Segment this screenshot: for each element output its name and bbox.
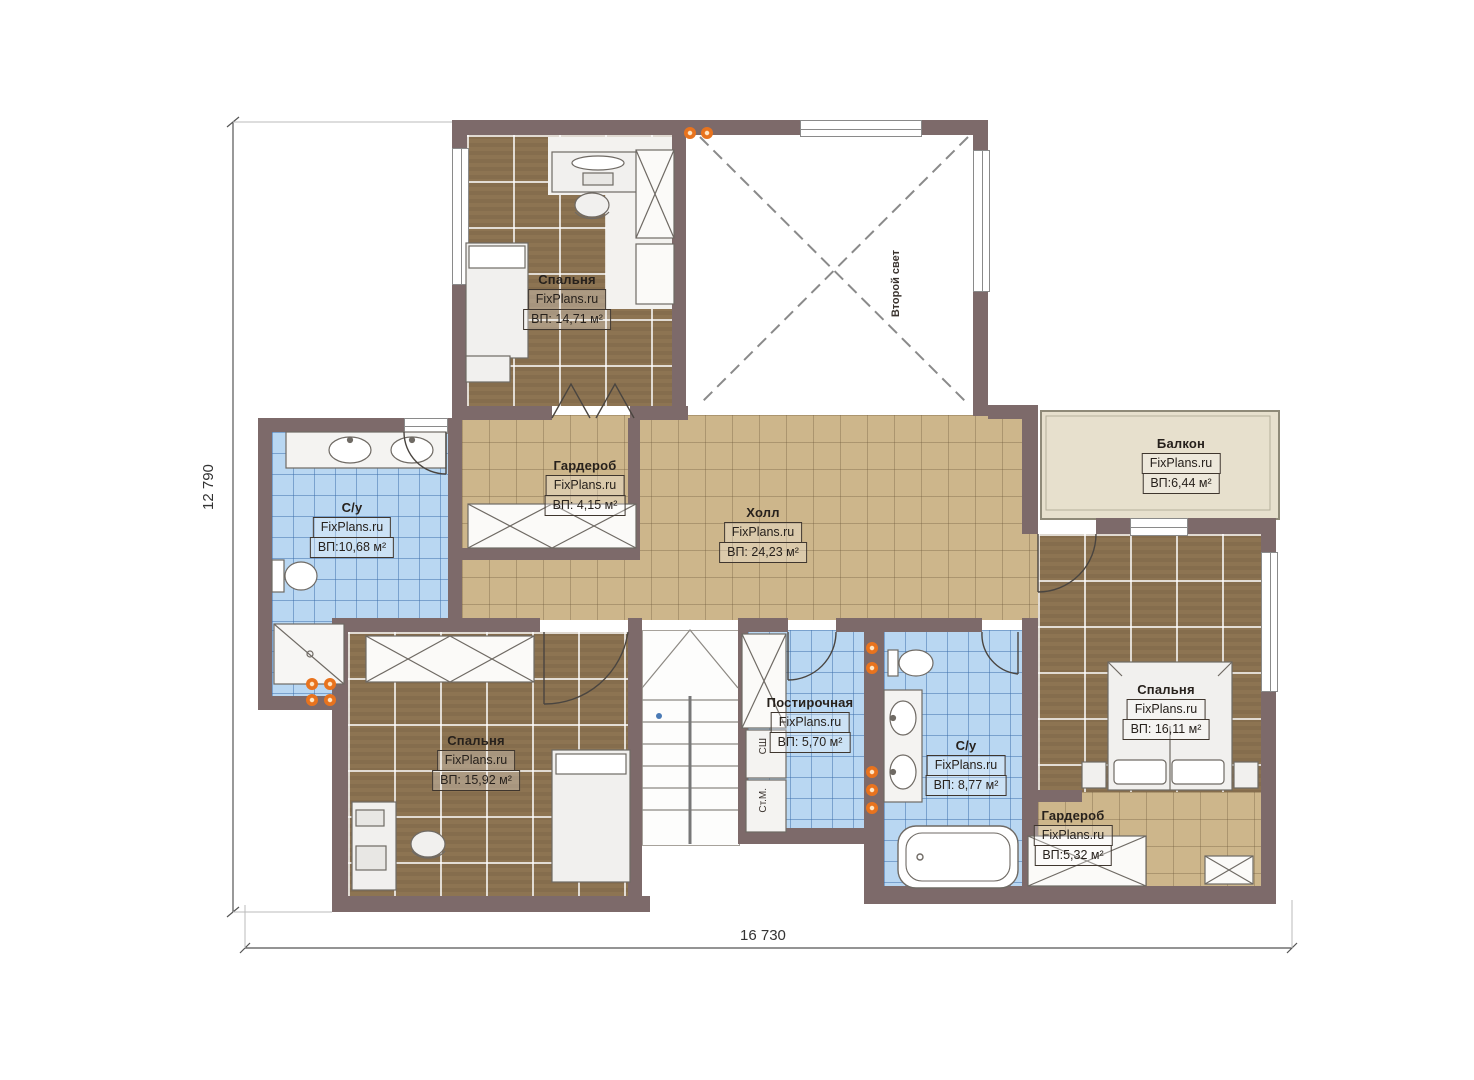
room-area: ВП: 5,70 м² bbox=[770, 732, 851, 753]
room-name: Спальня bbox=[1137, 682, 1195, 697]
spot-dot bbox=[866, 642, 878, 654]
wall bbox=[1022, 419, 1038, 518]
wall bbox=[348, 618, 540, 632]
spot-dot bbox=[866, 802, 878, 814]
room-name: Гардероб bbox=[553, 458, 616, 473]
floor-plan: Спальня FixPlans.ru ВП: 14,71 м² Гардеро… bbox=[0, 0, 1474, 1080]
wall bbox=[462, 548, 640, 560]
spot-dot bbox=[866, 662, 878, 674]
room-label-bath-right: С/у FixPlans.ru ВП: 8,77 м² bbox=[926, 738, 1007, 796]
spot-dot bbox=[701, 127, 713, 139]
room-label-bedroom-top: Спальня FixPlans.ru ВП: 14,71 м² bbox=[523, 272, 611, 330]
wall bbox=[452, 406, 552, 420]
wall bbox=[738, 630, 748, 830]
dimension-height: 12 790 bbox=[200, 464, 217, 510]
room-area: ВП:10,68 м² bbox=[310, 537, 394, 558]
room-label-hall: Холл FixPlans.ru ВП: 24,23 м² bbox=[719, 505, 807, 563]
spot-dot bbox=[324, 694, 336, 706]
wall bbox=[738, 828, 884, 844]
room-brand: FixPlans.ru bbox=[313, 517, 392, 538]
room-area: ВП: 24,23 м² bbox=[719, 542, 807, 563]
room-brand: FixPlans.ru bbox=[1034, 825, 1113, 846]
room-brand: FixPlans.ru bbox=[927, 755, 1006, 776]
room-label-bedroom-right: Спальня FixPlans.ru ВП: 16,11 м² bbox=[1123, 682, 1210, 740]
floor-stairs bbox=[642, 630, 740, 846]
wall bbox=[864, 886, 1276, 904]
balcony-door bbox=[1130, 518, 1188, 536]
wall bbox=[628, 618, 642, 912]
window bbox=[1261, 552, 1278, 692]
room-brand: FixPlans.ru bbox=[1142, 453, 1221, 474]
door-gap-bath-left bbox=[404, 418, 448, 434]
room-area: ВП: 4,15 м² bbox=[545, 495, 626, 516]
window bbox=[800, 120, 922, 137]
void-label: Второй свет bbox=[890, 250, 902, 317]
wall bbox=[1022, 518, 1038, 534]
room-brand: FixPlans.ru bbox=[771, 712, 850, 733]
room-label-bath-left: С/у FixPlans.ru ВП:10,68 м² bbox=[310, 500, 394, 558]
wall bbox=[332, 896, 650, 912]
wall bbox=[628, 418, 640, 560]
dryer-label: СШ bbox=[758, 738, 769, 754]
floor-void bbox=[687, 135, 973, 405]
room-label-balcony: Балкон FixPlans.ru ВП:6,44 м² bbox=[1142, 436, 1221, 494]
spot-dot bbox=[866, 766, 878, 778]
spot-dot bbox=[324, 678, 336, 690]
wall bbox=[1022, 618, 1038, 792]
room-brand: FixPlans.ru bbox=[724, 522, 803, 543]
wall bbox=[448, 418, 462, 630]
room-brand: FixPlans.ru bbox=[528, 289, 607, 310]
room-name: С/у bbox=[956, 738, 977, 753]
room-name: Постирочная bbox=[767, 695, 854, 710]
room-label-bedroom-left: Спальня FixPlans.ru ВП: 15,92 м² bbox=[432, 733, 520, 791]
room-area: ВП: 15,92 м² bbox=[432, 770, 520, 791]
room-brand: FixPlans.ru bbox=[437, 750, 516, 771]
room-name: Гардероб bbox=[1041, 808, 1104, 823]
wall bbox=[1096, 518, 1130, 534]
spot-dot bbox=[306, 678, 318, 690]
wall bbox=[988, 405, 1038, 419]
room-name: Балкон bbox=[1157, 436, 1205, 451]
room-area: ВП:5,32 м² bbox=[1034, 845, 1111, 866]
room-name: Холл bbox=[746, 505, 779, 520]
wall bbox=[332, 618, 348, 912]
spot-dot bbox=[866, 784, 878, 796]
room-area: ВП: 8,77 м² bbox=[926, 775, 1007, 796]
wall bbox=[836, 618, 982, 632]
floor-bedroom-top bbox=[467, 135, 672, 406]
room-area: ВП: 16,11 м² bbox=[1123, 719, 1210, 740]
dimension-width: 16 730 bbox=[740, 927, 786, 944]
wall bbox=[258, 418, 404, 432]
floor-bedroom-right bbox=[1038, 534, 1261, 792]
room-name: Спальня bbox=[447, 733, 505, 748]
washer-label: Ст.М. bbox=[758, 788, 769, 813]
room-area: ВП: 14,71 м² bbox=[523, 309, 611, 330]
room-name: С/у bbox=[342, 500, 363, 515]
wall bbox=[258, 418, 272, 710]
wall bbox=[672, 135, 686, 420]
room-name: Спальня bbox=[538, 272, 596, 287]
room-label-wardrobe-top: Гардероб FixPlans.ru ВП: 4,15 м² bbox=[545, 458, 626, 516]
room-area: ВП:6,44 м² bbox=[1142, 473, 1219, 494]
wall bbox=[738, 618, 788, 632]
room-brand: FixPlans.ru bbox=[546, 475, 625, 496]
room-label-wardrobe-bottom: Гардероб FixPlans.ru ВП:5,32 м² bbox=[1034, 808, 1113, 866]
window bbox=[452, 148, 469, 285]
room-label-laundry: Постирочная FixPlans.ru ВП: 5,70 м² bbox=[767, 695, 854, 753]
window bbox=[973, 150, 990, 292]
spot-dot bbox=[306, 694, 318, 706]
room-brand: FixPlans.ru bbox=[1127, 699, 1206, 720]
spot-dot bbox=[684, 127, 696, 139]
